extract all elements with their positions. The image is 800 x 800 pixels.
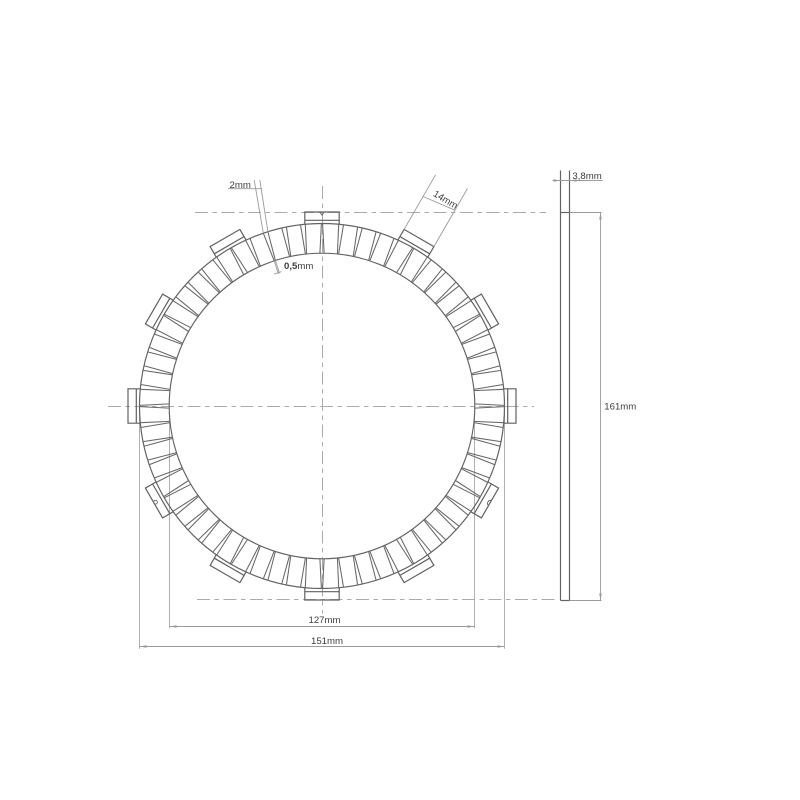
svg-text:161mm: 161mm xyxy=(604,402,636,413)
svg-text:127mm: 127mm xyxy=(309,615,341,626)
svg-text:2mm: 2mm xyxy=(230,180,251,191)
svg-text:151mm: 151mm xyxy=(311,636,343,647)
svg-text:0,5mm: 0,5mm xyxy=(284,261,313,272)
svg-text:3,8mm: 3,8mm xyxy=(572,171,601,182)
